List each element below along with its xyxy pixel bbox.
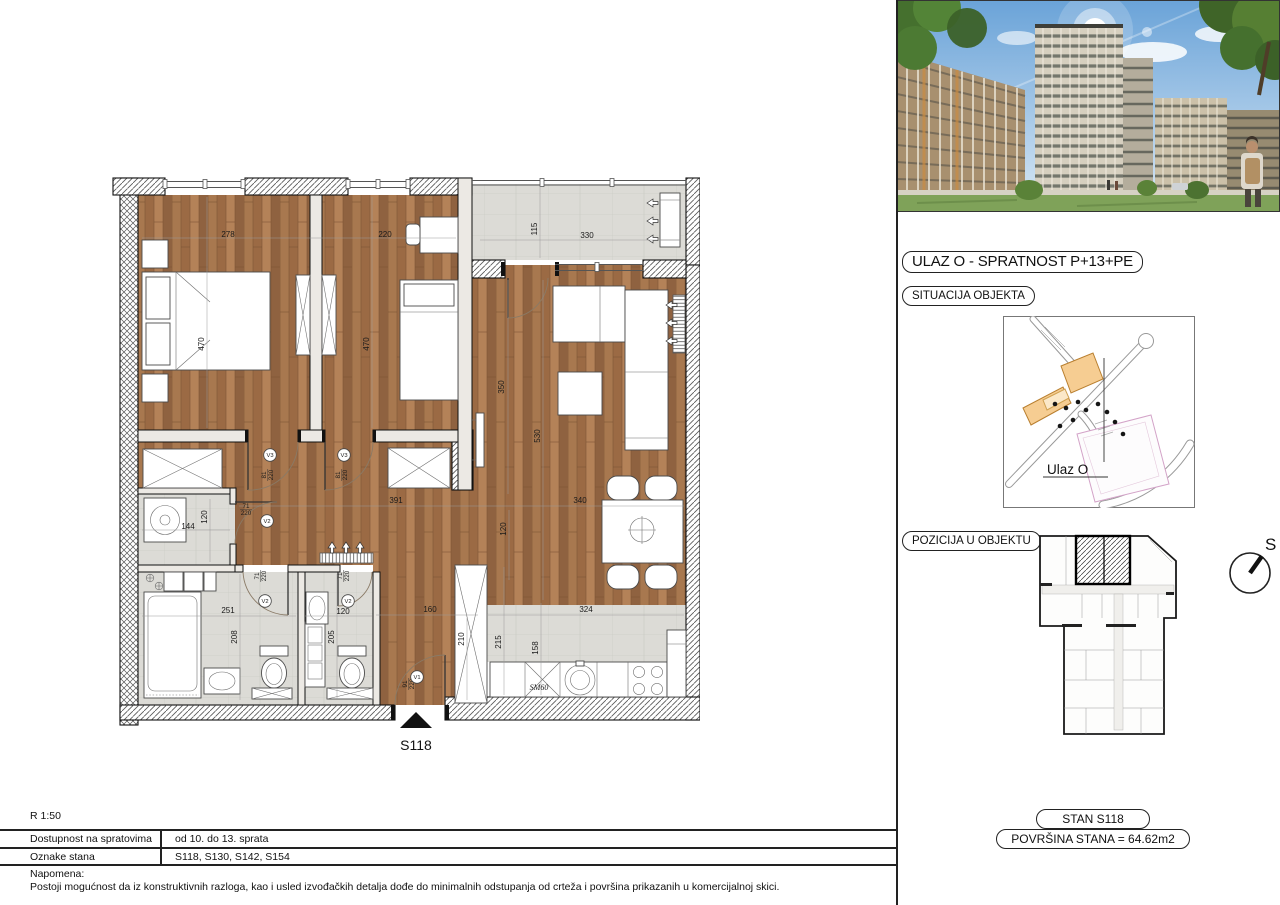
dimension-label: 120 bbox=[200, 510, 209, 524]
position-plan bbox=[1026, 530, 1194, 744]
nightstand bbox=[142, 240, 168, 268]
dimension-label: 470 bbox=[197, 337, 206, 351]
section-label-situacija: SITUACIJA OBJEKTA bbox=[902, 286, 1035, 306]
table-row-label: Dostupnost na spratovima bbox=[30, 833, 152, 845]
toilet bbox=[338, 646, 366, 656]
table-row-value: S118, S130, S142, S154 bbox=[175, 851, 290, 863]
drawing-sheet: 2782201153304704703505303913401201441202… bbox=[0, 0, 1280, 905]
svg-text:71: 71 bbox=[242, 503, 250, 510]
svg-text:220: 220 bbox=[342, 469, 349, 480]
dimension-label: 210 bbox=[457, 632, 466, 646]
sheet-title: ULAZ O - SPRATNOST P+13+PE bbox=[902, 251, 1143, 273]
floor-finishes bbox=[138, 184, 686, 705]
radiator bbox=[320, 553, 373, 563]
dimension-label: 220 bbox=[378, 230, 392, 239]
dimension-label: 350 bbox=[497, 380, 506, 394]
table-line bbox=[0, 847, 898, 849]
svg-text:V2: V2 bbox=[344, 599, 351, 605]
entrance-arrow bbox=[400, 712, 432, 728]
lawn bbox=[897, 195, 1280, 212]
svg-text:91: 91 bbox=[402, 680, 409, 688]
washing-machine bbox=[144, 498, 186, 542]
table-row-value: od 10. do 13. sprata bbox=[175, 833, 268, 845]
svg-text:220: 220 bbox=[344, 570, 351, 581]
dimension-label: 120 bbox=[336, 607, 350, 616]
site-plan: Ulaz O bbox=[1003, 316, 1195, 508]
highlighted-apartment bbox=[1076, 536, 1130, 584]
dimension-label: 208 bbox=[230, 630, 239, 644]
toilet bbox=[260, 646, 288, 656]
wardrobe bbox=[143, 449, 222, 488]
apartment-id-label: S118 bbox=[400, 737, 432, 753]
nightstand bbox=[142, 374, 168, 402]
table-line bbox=[0, 829, 898, 831]
dimension-label: 160 bbox=[423, 605, 437, 614]
ac-unit bbox=[660, 193, 680, 247]
dimension-label: SM60 bbox=[530, 683, 549, 692]
svg-text:81: 81 bbox=[335, 471, 342, 479]
dimension-label: 251 bbox=[221, 606, 235, 615]
table-column-divider bbox=[160, 829, 162, 866]
dimension-label: 530 bbox=[533, 429, 542, 443]
coffee-table bbox=[558, 372, 602, 415]
dimension-label: 144 bbox=[181, 522, 195, 531]
area-pill: POVRŠINA STANA = 64.62m2 bbox=[996, 829, 1190, 849]
dimension-label: 205 bbox=[327, 630, 336, 644]
svg-text:V2: V2 bbox=[263, 519, 270, 525]
svg-text:V2: V2 bbox=[261, 599, 268, 605]
dimension-label: 278 bbox=[221, 230, 235, 239]
note-title: Napomena: bbox=[30, 868, 84, 880]
chair bbox=[406, 224, 420, 245]
svg-text:71: 71 bbox=[337, 572, 344, 580]
installation-shaft bbox=[305, 622, 325, 687]
floor-plan: 2782201153304704703505303913401201441202… bbox=[100, 172, 700, 764]
north-label: S bbox=[1265, 535, 1276, 554]
svg-text:220: 220 bbox=[261, 570, 268, 581]
apartment-pill: STAN S118 bbox=[1036, 809, 1150, 829]
dimension-label: 215 bbox=[494, 635, 503, 649]
dimension-label: 120 bbox=[499, 522, 508, 536]
dimension-label: 158 bbox=[531, 641, 540, 655]
svg-text:V3: V3 bbox=[266, 453, 273, 459]
tv bbox=[476, 413, 484, 467]
svg-text:V1: V1 bbox=[413, 675, 420, 681]
sheet-divider bbox=[896, 0, 898, 905]
svg-text:81: 81 bbox=[261, 471, 268, 479]
dimension-label: 470 bbox=[362, 337, 371, 351]
ulaz-label: Ulaz O bbox=[1047, 462, 1088, 477]
building-render-photo bbox=[897, 0, 1280, 212]
dimension-label: 330 bbox=[580, 231, 594, 240]
table-line bbox=[0, 864, 898, 866]
note-text: Postoji mogućnost da iz konstruktivnih r… bbox=[30, 881, 779, 893]
fridge bbox=[667, 630, 686, 697]
svg-text:71: 71 bbox=[254, 572, 261, 580]
compass: S bbox=[1224, 528, 1280, 600]
kitchen-counter bbox=[490, 661, 667, 697]
desk bbox=[420, 217, 458, 253]
dimension-label: 115 bbox=[530, 222, 539, 235]
dimension-label: 391 bbox=[389, 496, 403, 505]
dimension-label: 340 bbox=[573, 496, 587, 505]
dimension-label: 324 bbox=[579, 605, 593, 614]
bathtub bbox=[144, 592, 201, 698]
svg-text:220: 220 bbox=[241, 510, 252, 517]
table-row-label: Oznake stana bbox=[30, 851, 95, 863]
scale-label: R 1:50 bbox=[30, 810, 61, 822]
wardrobe bbox=[388, 448, 450, 488]
svg-text:V3: V3 bbox=[340, 453, 347, 459]
svg-text:220: 220 bbox=[268, 469, 275, 480]
section-label-pozicija: POZICIJA U OBJEKTU bbox=[902, 531, 1041, 551]
